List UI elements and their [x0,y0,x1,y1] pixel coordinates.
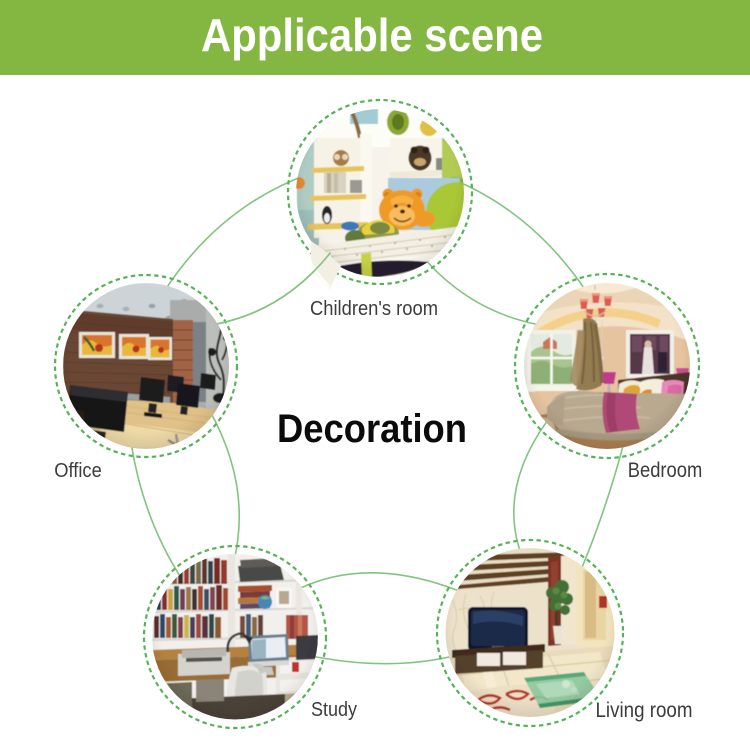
svg-text:Office: Office [54,460,102,482]
svg-text:Study: Study [311,699,357,721]
svg-text:Bedroom: Bedroom [628,459,703,482]
svg-text:Children's room: Children's room [310,298,438,320]
svg-text:Applicable scene: Applicable scene [201,9,543,61]
svg-text:Decoration: Decoration [277,407,467,451]
svg-text:Living room: Living room [596,699,693,722]
